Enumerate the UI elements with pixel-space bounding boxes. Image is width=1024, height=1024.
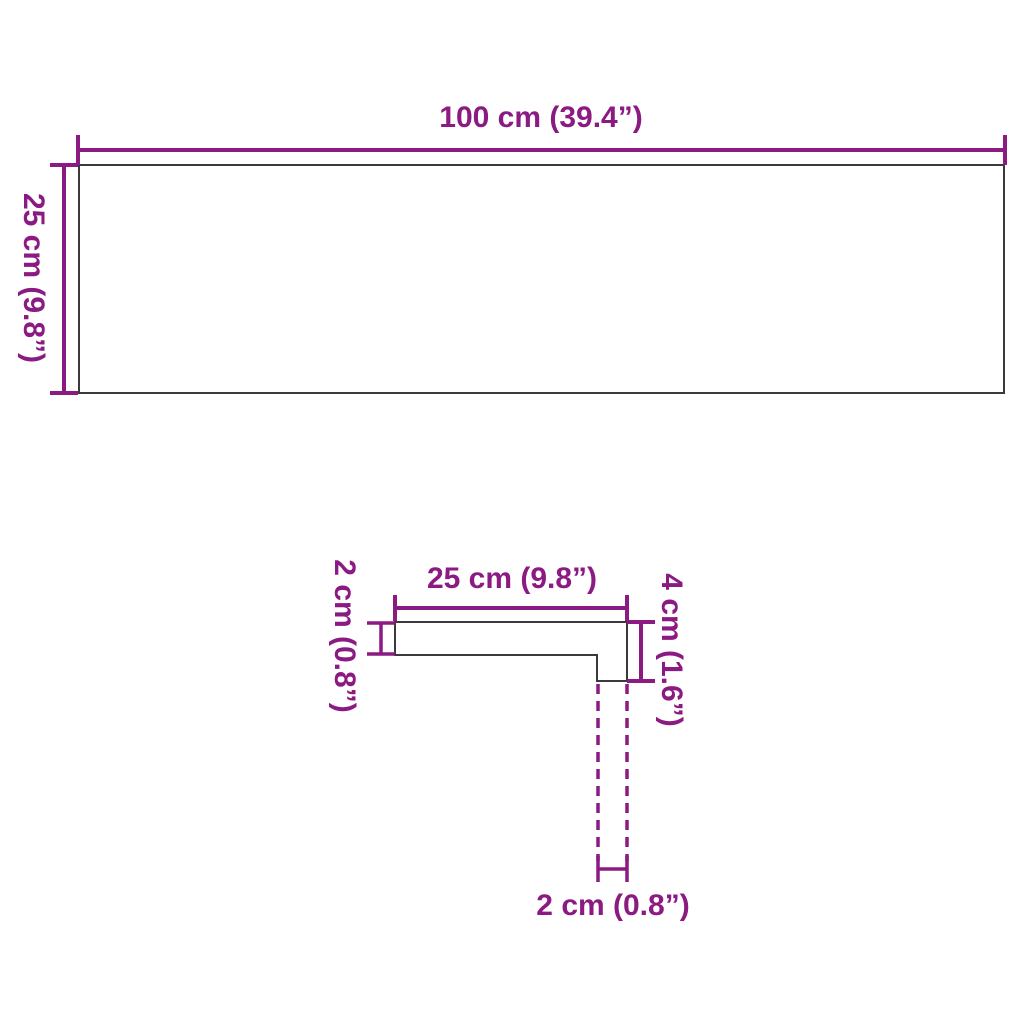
diagram-drawing — [0, 0, 1024, 1024]
profile-width-label: 25 cm (9.8”) — [427, 564, 597, 594]
profile-height-label: 4 cm (1.6”) — [656, 573, 686, 726]
dimension-diagram: 100 cm (39.4”) 25 cm (9.8”) 25 cm (9.8”)… — [0, 0, 1024, 1024]
profile-thickness-label: 2 cm (0.8”) — [329, 559, 359, 712]
board-width-label: 100 cm (39.4”) — [439, 103, 642, 133]
board-depth-label: 25 cm (9.8”) — [18, 193, 48, 363]
profile-leg-width-label: 2 cm (0.8”) — [536, 891, 689, 921]
profile-outline — [395, 622, 627, 681]
board-outline — [79, 165, 1004, 393]
